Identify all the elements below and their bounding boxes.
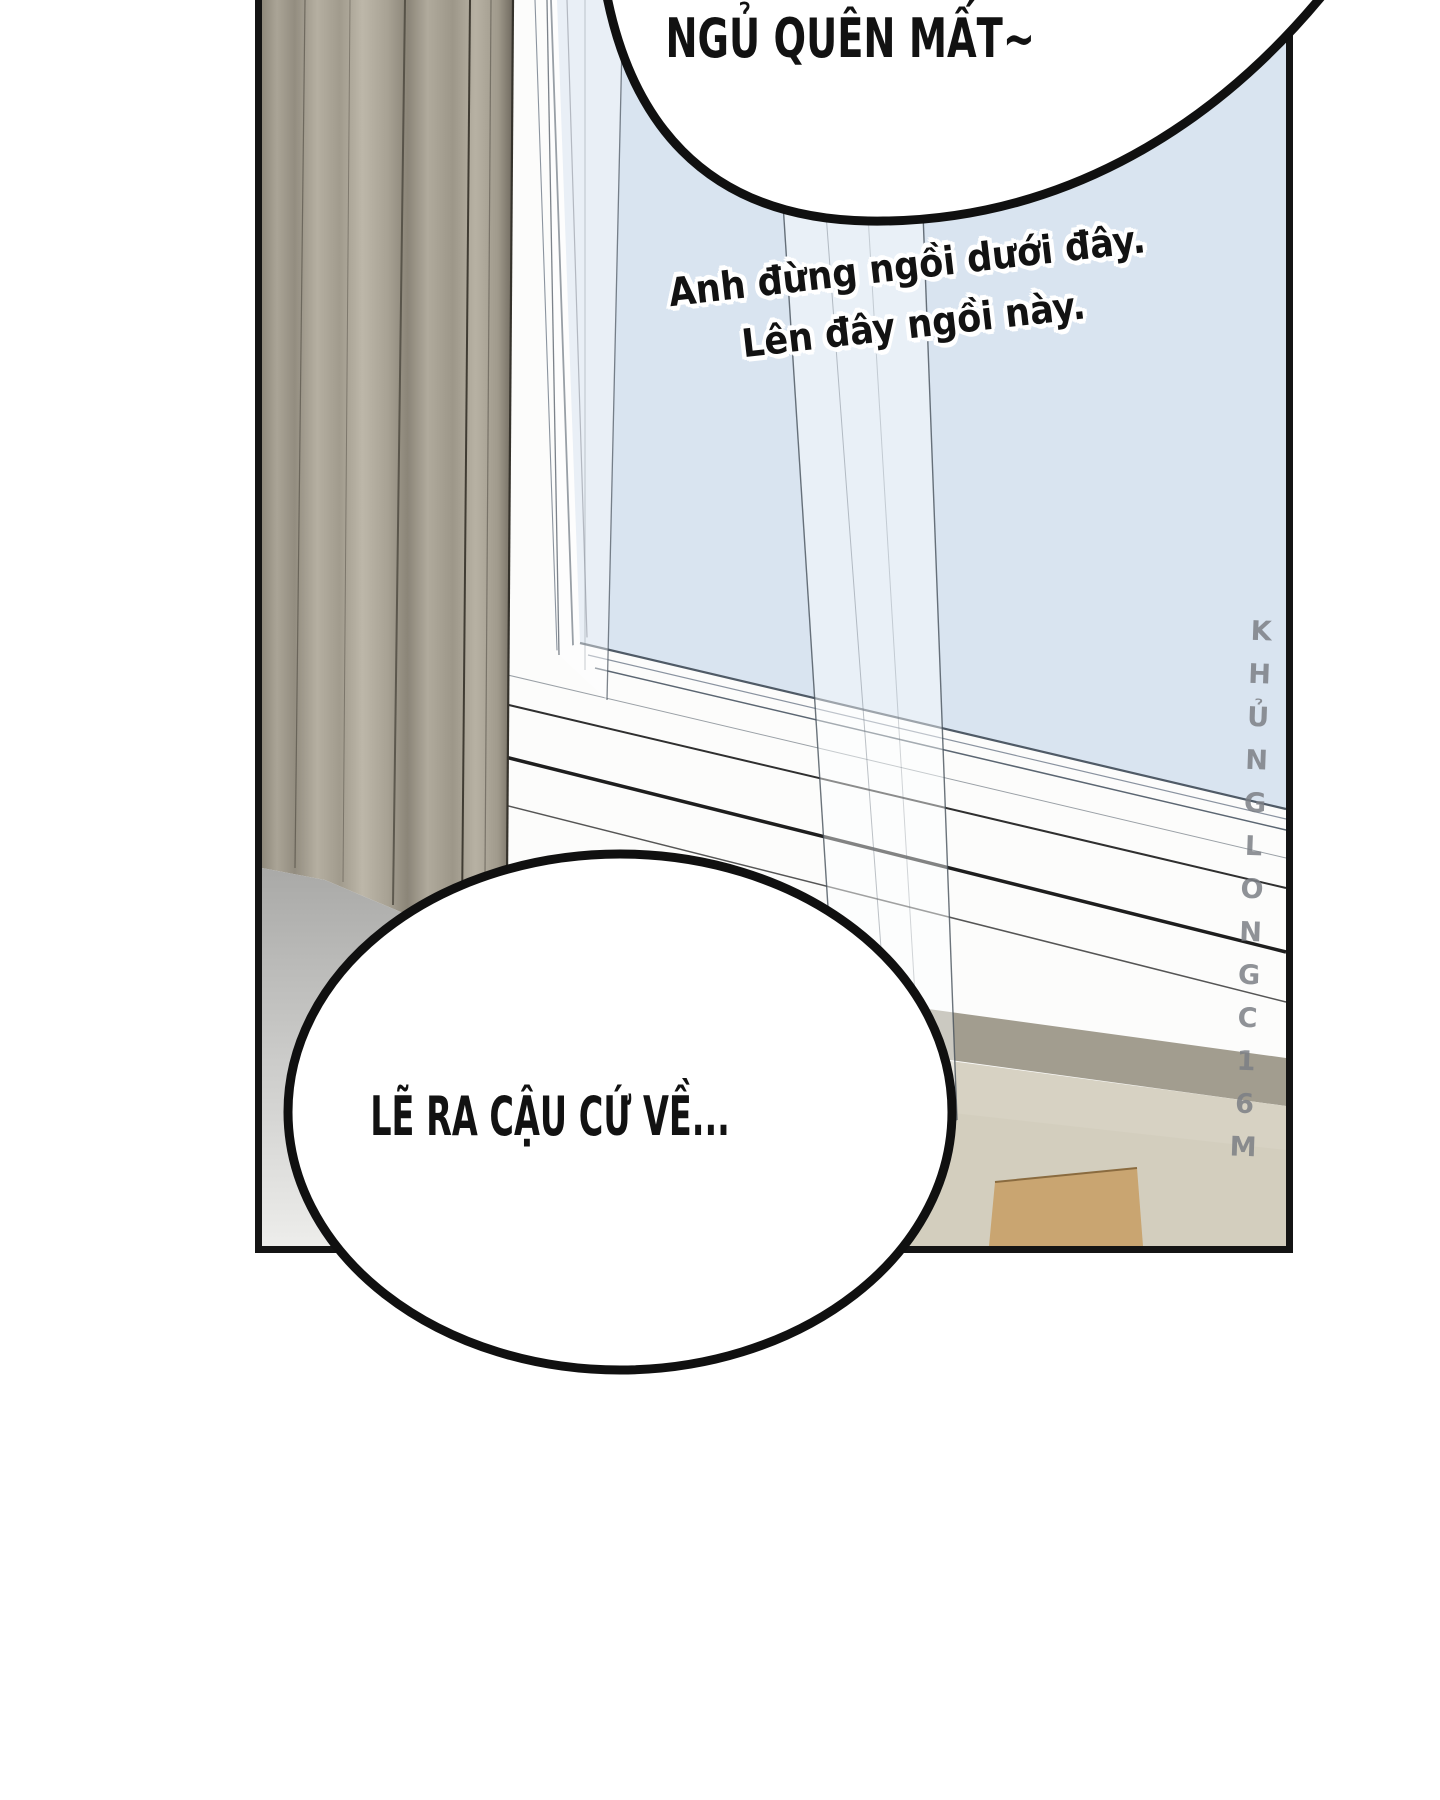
comic-page: KHỦNGLONGC16M NGỦ QUÊN MẤT~ Anh đừng ngồ… (0, 0, 1440, 1800)
bottom-bubble-text-line: LẼ RA CẬU CỨ VỀ... (370, 1088, 730, 1145)
top-bubble-text: NGỦ QUÊN MẤT~ (560, 10, 1140, 67)
top-bubble-text-line: NGỦ QUÊN MẤT~ (665, 10, 1034, 67)
panel-border-left (255, 0, 262, 1253)
panel-border-right (1286, 0, 1293, 1253)
panel-border-bottom (255, 1246, 1293, 1253)
panel-scene (255, 0, 1293, 1253)
bottom-bubble-text: LẼ RA CẬU CỨ VỀ... (260, 1088, 820, 1145)
